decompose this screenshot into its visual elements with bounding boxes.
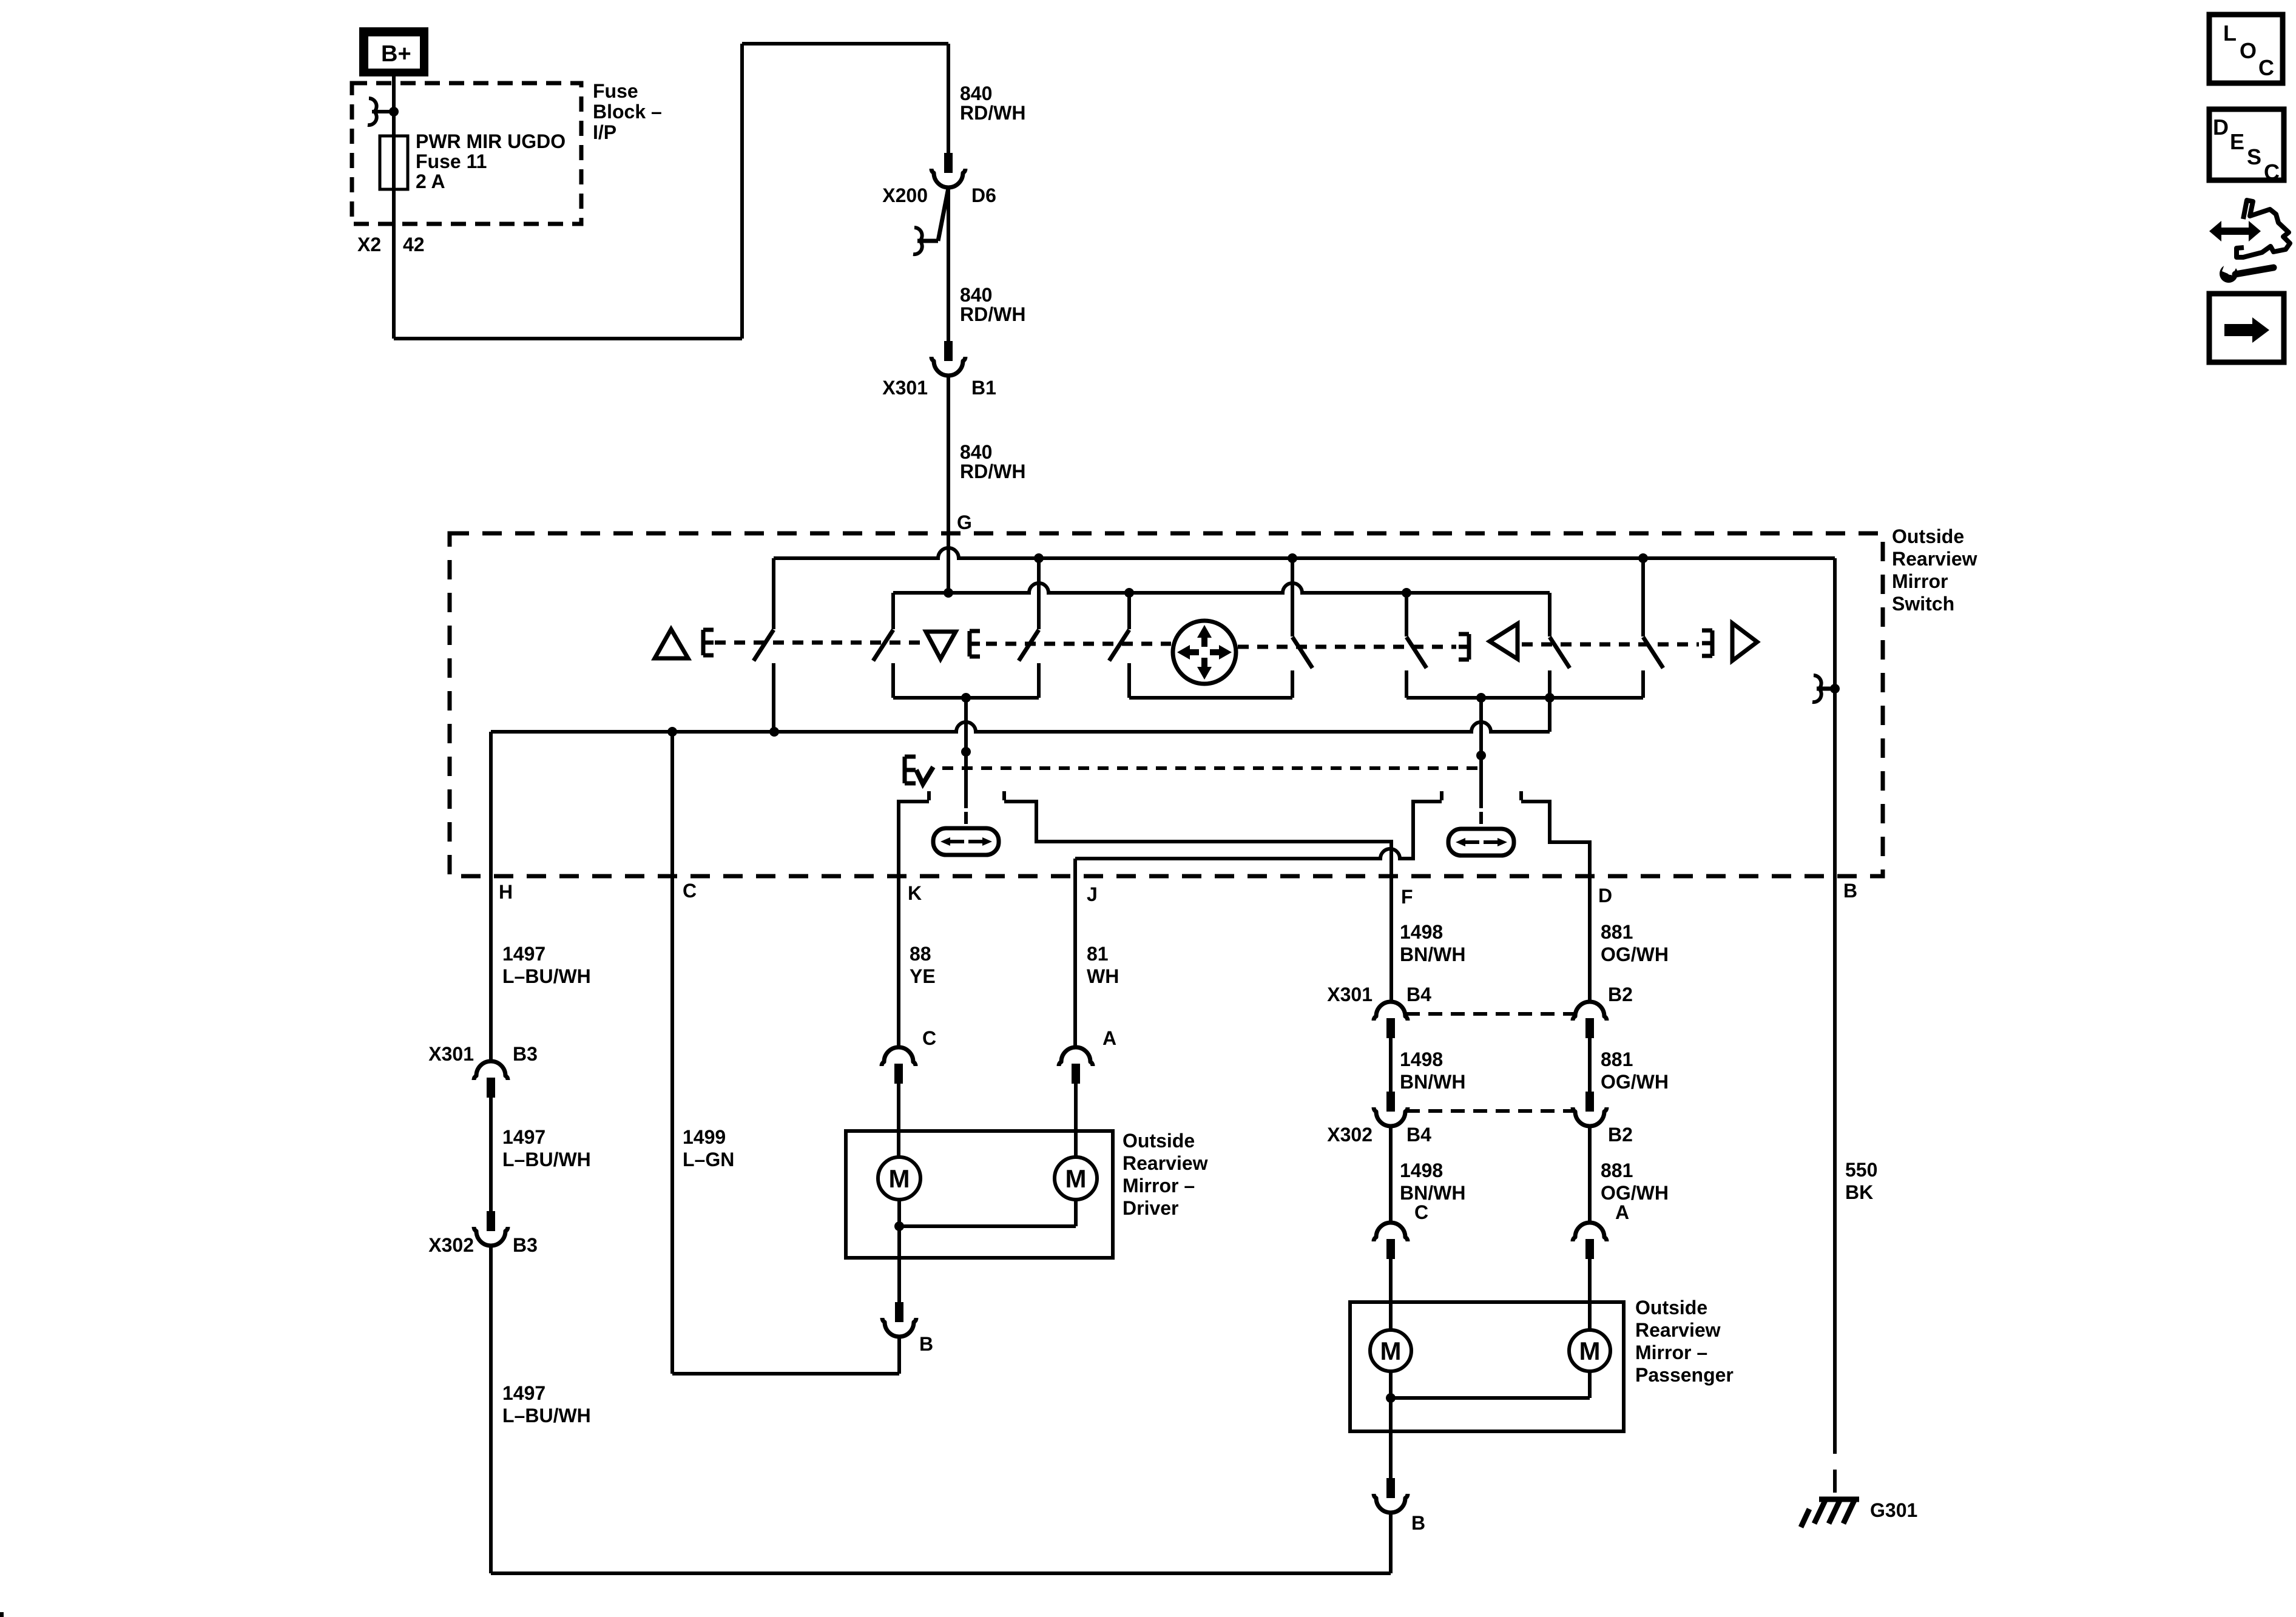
svg-text:X301: X301: [1327, 984, 1373, 1005]
svg-text:B2: B2: [1608, 984, 1633, 1005]
svg-text:C: C: [683, 880, 697, 902]
svg-text:Outside: Outside: [1892, 525, 1964, 547]
svg-text:Fuse: Fuse: [593, 80, 638, 102]
svg-text:S: S: [2247, 144, 2261, 169]
svg-text:C: C: [2264, 160, 2280, 184]
svg-text:G: G: [957, 511, 972, 533]
svg-text:L–BU/WH: L–BU/WH: [502, 965, 591, 987]
svg-text:PWR MIR UGDO: PWR MIR UGDO: [416, 130, 566, 152]
svg-text:1497: 1497: [502, 943, 545, 965]
svg-text:B4: B4: [1406, 984, 1431, 1005]
svg-text:H: H: [499, 881, 513, 903]
svg-text:B: B: [1843, 880, 1857, 902]
svg-text:J: J: [1087, 883, 1098, 905]
svg-text:1498: 1498: [1400, 1160, 1443, 1181]
svg-text:Rearview: Rearview: [1123, 1152, 1208, 1174]
svg-text:B1: B1: [971, 377, 996, 399]
svg-text:X302: X302: [1327, 1124, 1373, 1146]
svg-text:Rearview: Rearview: [1635, 1319, 1721, 1341]
svg-text:42: 42: [403, 234, 425, 255]
svg-text:1499: 1499: [683, 1126, 726, 1148]
svg-text:M: M: [1579, 1337, 1601, 1365]
svg-text:B3: B3: [513, 1234, 538, 1256]
svg-text:E: E: [2230, 129, 2244, 154]
svg-text:F: F: [1401, 886, 1413, 908]
svg-text:RD/WH: RD/WH: [960, 303, 1025, 325]
svg-text:2 A: 2 A: [416, 170, 445, 192]
svg-text:881: 881: [1601, 921, 1633, 943]
svg-text:Driver: Driver: [1123, 1197, 1179, 1219]
svg-text:X302: X302: [428, 1234, 474, 1256]
svg-text:840: 840: [960, 83, 992, 104]
svg-text:O: O: [2240, 38, 2257, 63]
svg-text:YE: YE: [910, 965, 936, 987]
svg-text:G301: G301: [1870, 1499, 1917, 1521]
svg-text:BN/WH: BN/WH: [1400, 1182, 1465, 1204]
svg-text:C: C: [1414, 1201, 1428, 1223]
svg-text:B: B: [919, 1333, 933, 1355]
svg-text:81: 81: [1087, 943, 1109, 965]
svg-text:B: B: [1411, 1512, 1425, 1534]
svg-text:B2: B2: [1608, 1124, 1633, 1146]
svg-text:840: 840: [960, 284, 992, 306]
svg-text:D6: D6: [971, 184, 996, 206]
svg-text:K: K: [908, 882, 922, 904]
svg-text:BN/WH: BN/WH: [1400, 944, 1465, 965]
svg-text:1498: 1498: [1400, 1048, 1443, 1070]
svg-text:Switch: Switch: [1892, 593, 1954, 615]
svg-text:Outside: Outside: [1123, 1130, 1195, 1152]
svg-text:M: M: [1380, 1337, 1402, 1365]
svg-text:Mirror –: Mirror –: [1635, 1342, 1707, 1363]
svg-text:X301: X301: [428, 1043, 474, 1065]
svg-text:Fuse 11: Fuse 11: [416, 150, 487, 172]
svg-text:I/P: I/P: [593, 121, 616, 143]
svg-text:X200: X200: [882, 184, 928, 206]
svg-text:BK: BK: [1845, 1181, 1873, 1203]
svg-text:1497: 1497: [502, 1126, 545, 1148]
svg-text:L: L: [2223, 21, 2237, 46]
svg-text:A: A: [1615, 1201, 1629, 1223]
svg-text:RD/WH: RD/WH: [960, 461, 1025, 482]
svg-text:C: C: [2258, 55, 2274, 80]
svg-text:OG/WH: OG/WH: [1601, 944, 1669, 965]
svg-text:M: M: [889, 1164, 910, 1193]
svg-text:C: C: [922, 1027, 936, 1049]
svg-text:X301: X301: [882, 377, 928, 399]
svg-text:840: 840: [960, 441, 992, 463]
svg-text:RD/WH: RD/WH: [960, 102, 1025, 124]
svg-text:B3: B3: [513, 1043, 538, 1065]
svg-text:Rearview: Rearview: [1892, 548, 1977, 570]
svg-text:WH: WH: [1087, 965, 1119, 987]
svg-text:881: 881: [1601, 1048, 1633, 1070]
svg-text:Mirror: Mirror: [1892, 570, 1948, 592]
svg-text:1498: 1498: [1400, 921, 1443, 943]
svg-text:OG/WH: OG/WH: [1601, 1071, 1669, 1093]
svg-text:A: A: [1102, 1027, 1116, 1049]
svg-text:B+: B+: [381, 41, 411, 67]
svg-text:L–BU/WH: L–BU/WH: [502, 1405, 591, 1426]
svg-text:881: 881: [1601, 1160, 1633, 1181]
svg-text:OG/WH: OG/WH: [1601, 1182, 1669, 1204]
svg-text:L–BU/WH: L–BU/WH: [502, 1149, 591, 1170]
svg-text:Outside: Outside: [1635, 1297, 1707, 1318]
svg-text:Block –: Block –: [593, 101, 662, 123]
svg-text:550: 550: [1845, 1159, 1877, 1181]
svg-text:B4: B4: [1406, 1124, 1431, 1146]
svg-text:88: 88: [910, 943, 931, 965]
svg-text:D: D: [2213, 115, 2229, 140]
svg-text:1497: 1497: [502, 1382, 545, 1404]
svg-text:M: M: [1065, 1164, 1087, 1193]
svg-text:BN/WH: BN/WH: [1400, 1071, 1465, 1093]
svg-text:D: D: [1598, 885, 1612, 906]
svg-text:Mirror –: Mirror –: [1123, 1175, 1195, 1197]
svg-text:X2: X2: [357, 234, 381, 255]
svg-text:L–GN: L–GN: [683, 1149, 734, 1170]
svg-text:Passenger: Passenger: [1635, 1364, 1734, 1386]
